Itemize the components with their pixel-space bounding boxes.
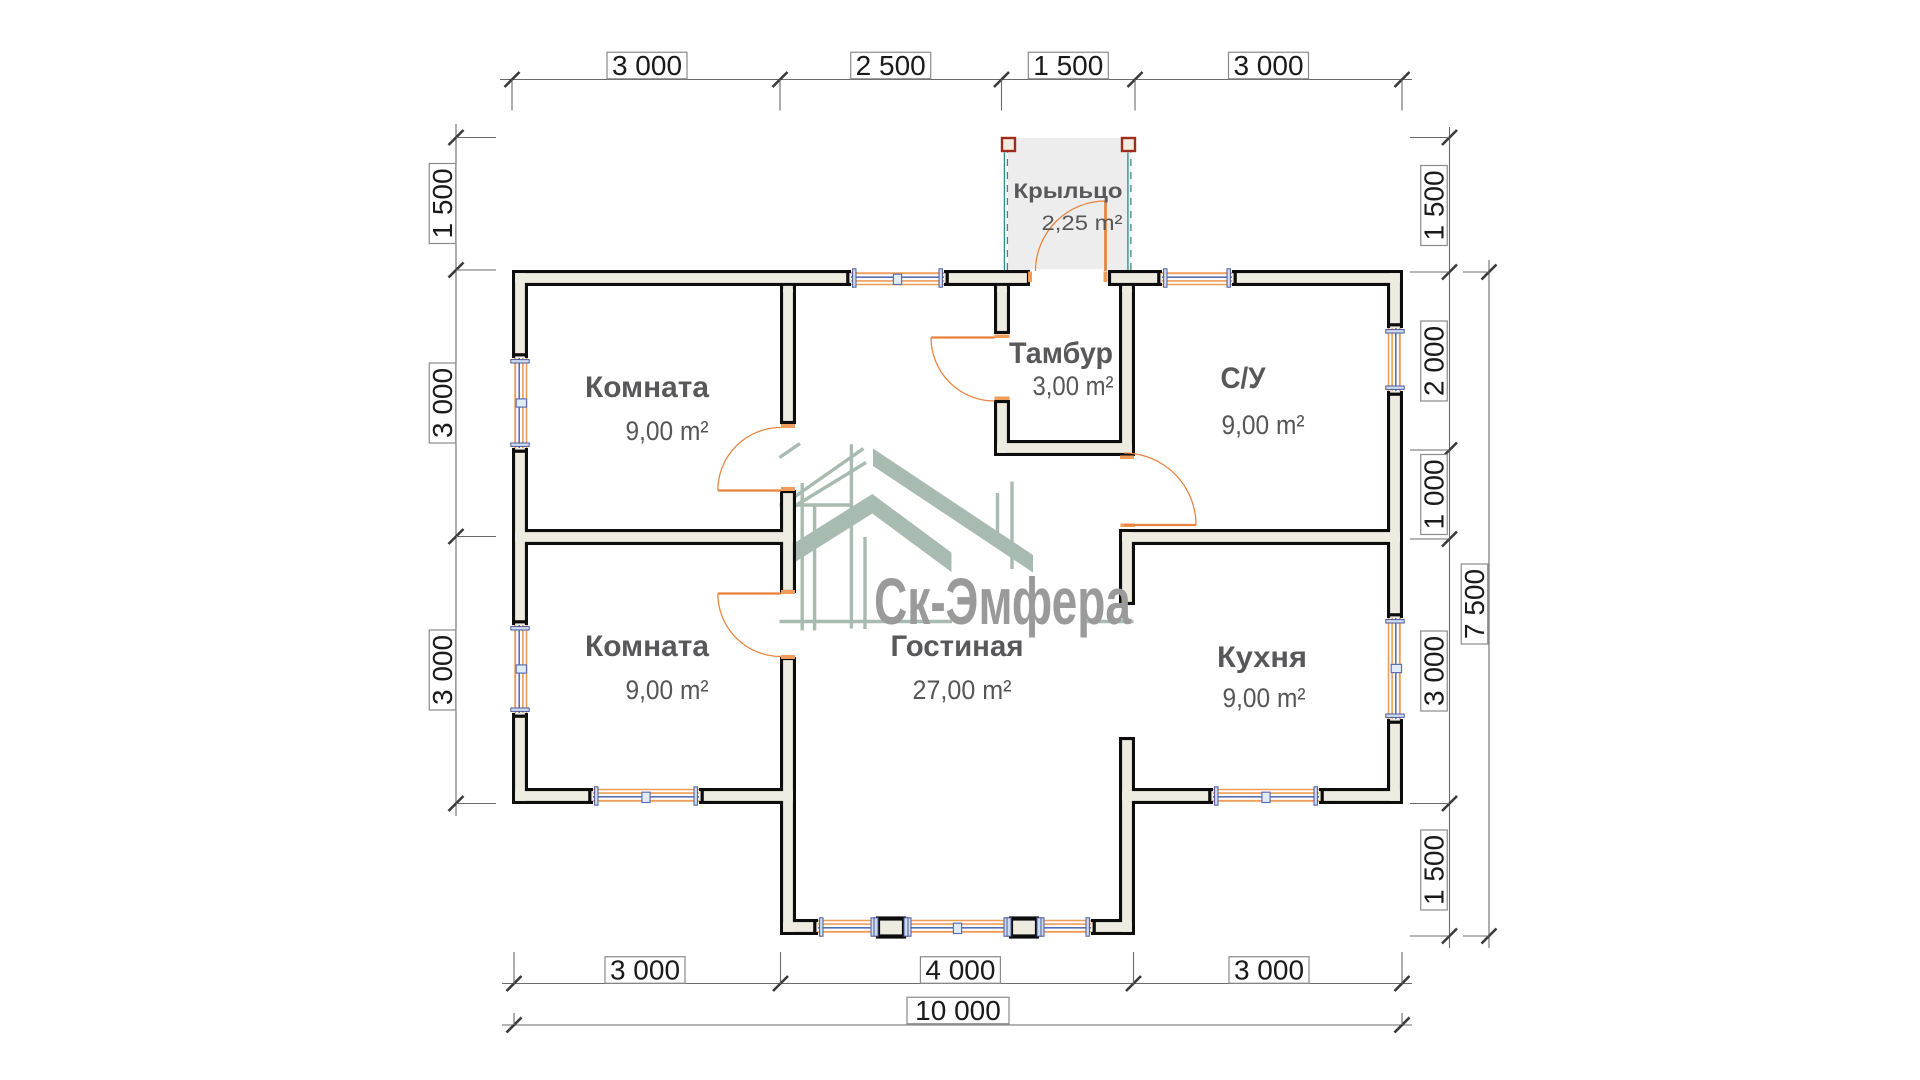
svg-text:3 000: 3 000 [1233, 50, 1303, 81]
svg-text:3 000: 3 000 [427, 368, 458, 438]
svg-text:9,00 m²: 9,00 m² [626, 675, 709, 705]
svg-text:1 500: 1 500 [427, 168, 458, 238]
svg-text:9,00 m²: 9,00 m² [1222, 410, 1305, 440]
svg-text:С/У: С/У [1221, 362, 1266, 395]
svg-text:3 000: 3 000 [427, 635, 458, 705]
svg-text:1 000: 1 000 [1419, 459, 1450, 529]
svg-text:7 500: 7 500 [1459, 569, 1490, 639]
svg-text:Комната: Комната [585, 630, 709, 663]
svg-text:1 500: 1 500 [1419, 835, 1450, 905]
svg-text:Кухня: Кухня [1217, 641, 1307, 674]
svg-text:Ск-Эмфера: Ск-Эмфера [874, 564, 1132, 638]
svg-text:1 500: 1 500 [1419, 170, 1450, 240]
svg-text:3,00 m²: 3,00 m² [1033, 371, 1114, 401]
svg-text:1 500: 1 500 [1033, 50, 1103, 81]
svg-text:27,00 m²: 27,00 m² [913, 675, 1012, 705]
svg-text:2 500: 2 500 [856, 50, 926, 81]
svg-text:Гостиная: Гостиная [891, 630, 1024, 663]
svg-text:3 000: 3 000 [610, 955, 680, 986]
svg-text:3 000: 3 000 [1234, 955, 1304, 986]
svg-text:Крыльцо: Крыльцо [1014, 179, 1123, 203]
svg-text:9,00 m²: 9,00 m² [626, 416, 709, 446]
svg-text:3 000: 3 000 [612, 50, 682, 81]
svg-text:4 000: 4 000 [925, 955, 995, 986]
svg-text:Тамбур: Тамбур [1009, 337, 1113, 370]
svg-text:3 000: 3 000 [1419, 636, 1450, 706]
svg-text:2 000: 2 000 [1419, 326, 1450, 396]
svg-text:10 000: 10 000 [915, 995, 1001, 1026]
svg-text:9,00 m²: 9,00 m² [1223, 683, 1306, 713]
svg-text:2,25 m²: 2,25 m² [1042, 211, 1123, 235]
svg-text:Комната: Комната [585, 371, 709, 404]
